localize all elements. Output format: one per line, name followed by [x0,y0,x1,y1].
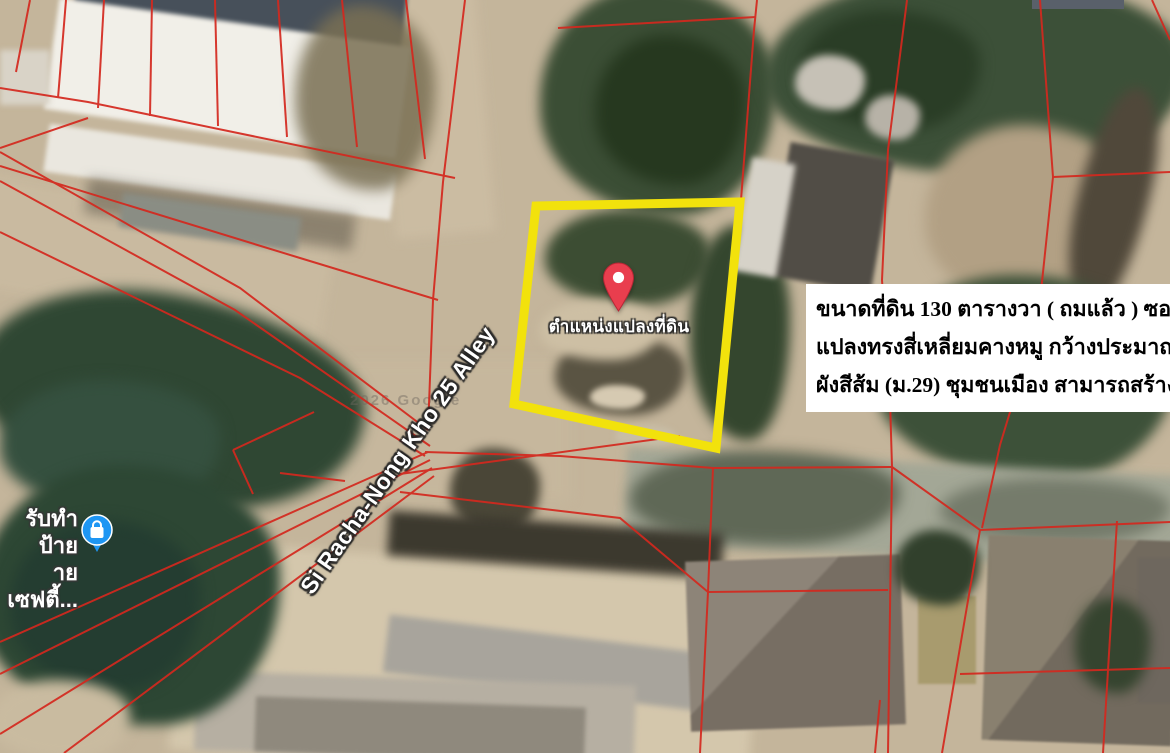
poi-label-line1: รับทำป้าย [0,505,78,559]
pin-label: ตำแหน่งแปลงที่ดิน [549,313,690,340]
location-pin-icon[interactable] [602,262,635,318]
poi-label-line2: ายเซฟตี้... [0,559,78,613]
satellite-map[interactable]: 2026 Google [0,0,1170,753]
land-info-line2: แปลงทรงสี่เหลี่ยมคางหมู กว้างประมาณ 20.5… [816,328,1170,366]
land-info-line3: ผังสีส้ม (ม.29) ชุมชนเมือง สามารถสร้างได… [816,366,1170,404]
land-info-line1: ขนาดที่ดิน 130 ตารางวา ( ถมแล้ว ) ซอย ศร… [816,290,1170,328]
land-info-box: ขนาดที่ดิน 130 ตารางวา ( ถมแล้ว ) ซอย ศร… [806,284,1170,412]
poi-marker[interactable]: รับทำป้าย ายเซฟตี้... [0,505,113,613]
poi-label: รับทำป้าย ายเซฟตี้... [0,505,78,613]
shopping-bag-poi-icon[interactable] [81,514,113,561]
